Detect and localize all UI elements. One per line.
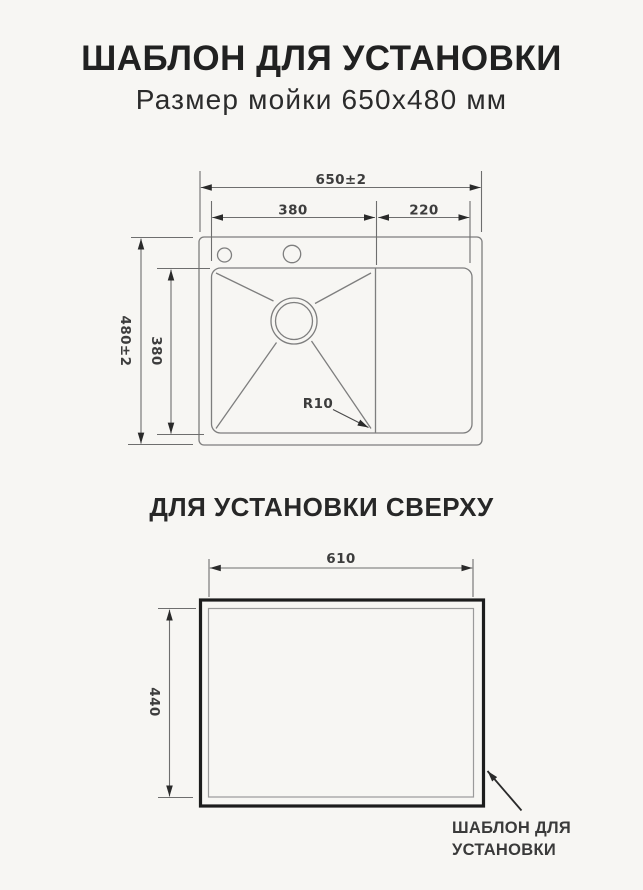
template-outer-border bbox=[201, 600, 484, 806]
callout-line-1: ШАБЛОН ДЛЯ bbox=[452, 818, 571, 840]
bowl-edge bbox=[212, 268, 473, 433]
template-dimension-lines bbox=[158, 559, 473, 798]
dim-label-cutout-height: 440 bbox=[146, 687, 162, 716]
drain-diagonal-br bbox=[312, 341, 372, 429]
dim-label-bowl-depth: 380 bbox=[148, 336, 164, 365]
dim-label-overall-depth: 480±2 bbox=[117, 316, 133, 367]
drain-inner-circle bbox=[276, 303, 313, 340]
dim-label-bowl-width: 380 bbox=[278, 203, 307, 219]
dim-label-drainer-width: 220 bbox=[409, 203, 438, 219]
radius-leader-arrow bbox=[333, 410, 369, 428]
installation-diagram: 650±2 380 220 480±2 380 R10 610 440 bbox=[0, 0, 643, 890]
dim-label-corner-radius: R10 bbox=[303, 396, 333, 412]
faucet-hole-large bbox=[283, 245, 300, 262]
faucet-hole-small bbox=[218, 248, 232, 262]
drain-diagonal-tl bbox=[216, 273, 274, 301]
drain-diagonal-tr bbox=[315, 273, 371, 304]
dim-label-overall-width: 650±2 bbox=[316, 172, 367, 188]
callout-line-2: УСТАНОВКИ bbox=[452, 840, 571, 862]
drain-diagonal-bl bbox=[216, 343, 277, 429]
callout-arrow bbox=[488, 771, 522, 811]
drain-outer-circle bbox=[271, 298, 317, 344]
template-cut-line bbox=[209, 609, 474, 798]
dim-label-cutout-width: 610 bbox=[326, 551, 355, 567]
template-callout-label: ШАБЛОН ДЛЯ УСТАНОВКИ bbox=[452, 818, 571, 861]
